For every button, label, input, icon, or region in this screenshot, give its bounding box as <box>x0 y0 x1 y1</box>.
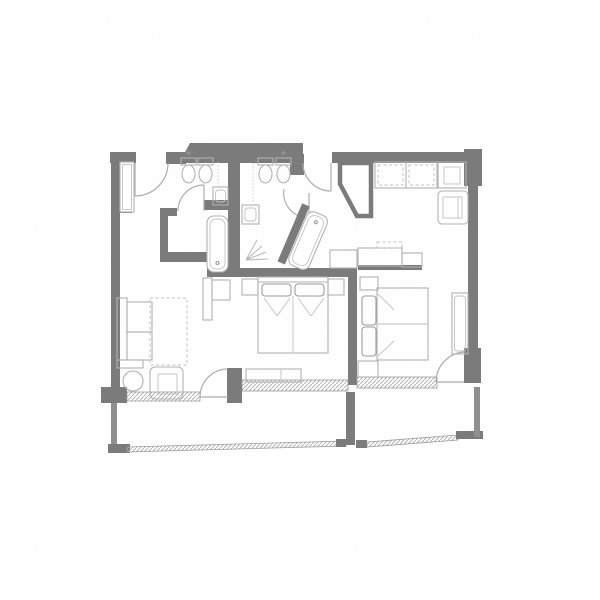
mid-wall-lower <box>348 272 357 385</box>
balcony-left-edge-wall <box>111 403 117 451</box>
bottom-right-pier <box>464 348 481 383</box>
hall-wall-vertical <box>160 213 168 258</box>
window-left-suite-west <box>127 392 200 401</box>
balcony-divider-post-right <box>356 440 367 448</box>
scan-noise-texture <box>0 0 600 600</box>
balcony-right-edge-wall <box>474 387 480 437</box>
entry-closet-left <box>120 162 134 212</box>
floor-plan-canvas <box>0 0 600 600</box>
mid-horizontal-wall <box>207 268 357 277</box>
right-wall <box>468 152 478 382</box>
floor-plan-drawing <box>0 0 600 600</box>
balcony-door-pier-left-suite <box>227 368 242 403</box>
balcony-divider-post-left <box>336 439 346 447</box>
entry-pier-right-suite <box>290 154 304 175</box>
bathtub-left-icon <box>207 216 228 272</box>
bottom-left-pier <box>101 387 127 403</box>
window-right-suite <box>357 377 437 388</box>
left-wall <box>111 152 120 403</box>
hall-wall-horizontal <box>160 252 207 262</box>
balcony-divider-wall <box>346 392 355 445</box>
mid-wall-upper <box>228 163 240 277</box>
